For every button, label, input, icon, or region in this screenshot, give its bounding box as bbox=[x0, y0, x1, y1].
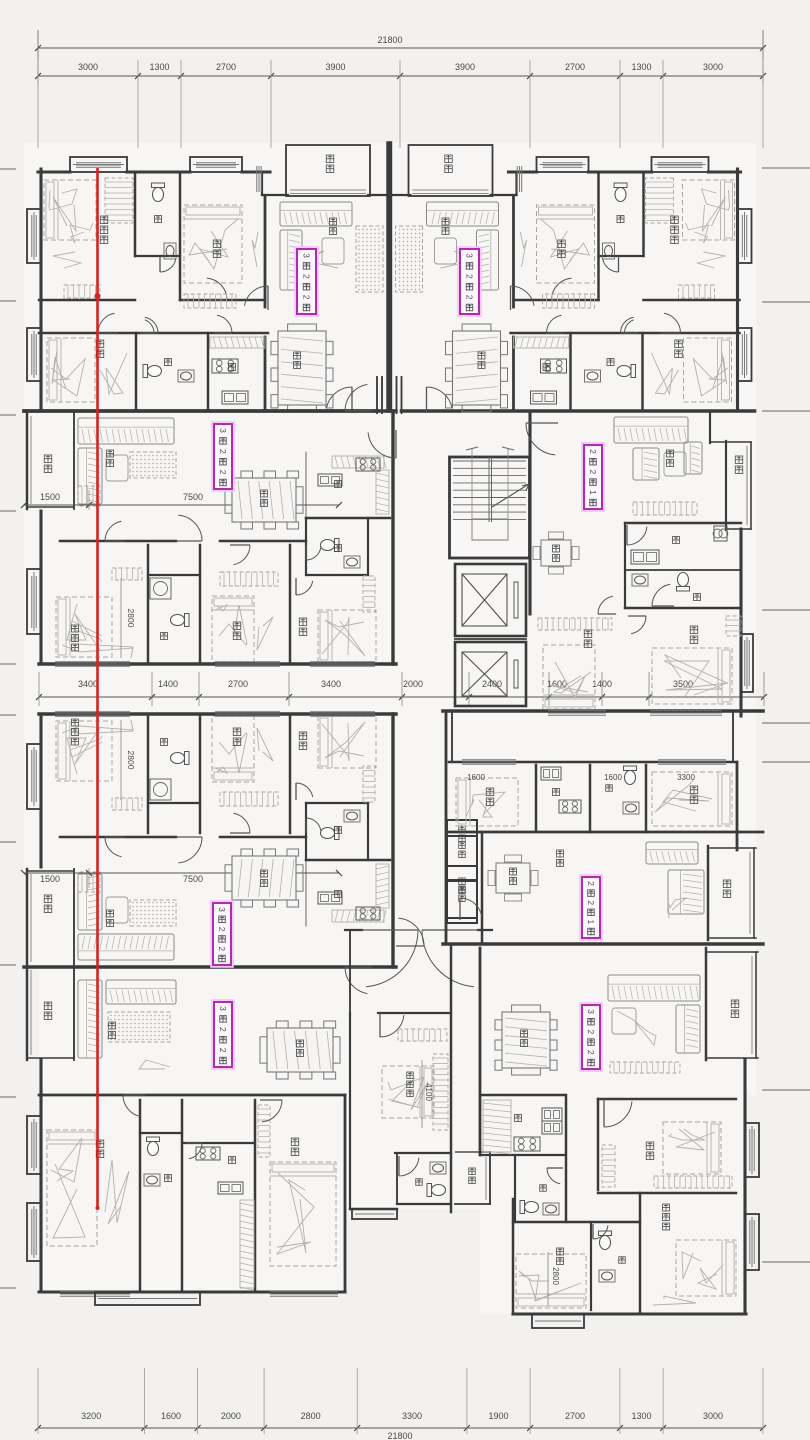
svg-text:21800: 21800 bbox=[387, 1431, 412, 1440]
svg-text:2: 2 bbox=[302, 274, 312, 279]
svg-text:3200: 3200 bbox=[81, 1411, 101, 1421]
svg-text:2700: 2700 bbox=[228, 679, 248, 689]
svg-text:2800: 2800 bbox=[126, 609, 136, 628]
svg-text:3000: 3000 bbox=[703, 62, 723, 72]
svg-text:1600: 1600 bbox=[604, 773, 622, 782]
svg-text:1300: 1300 bbox=[631, 1411, 651, 1421]
svg-text:2: 2 bbox=[218, 449, 228, 454]
svg-text:1500: 1500 bbox=[40, 874, 60, 884]
svg-text:2: 2 bbox=[218, 1048, 228, 1053]
svg-text:1: 1 bbox=[586, 920, 596, 925]
svg-text:2700: 2700 bbox=[565, 1411, 585, 1421]
svg-text:21800: 21800 bbox=[377, 35, 402, 45]
svg-text:2800: 2800 bbox=[126, 751, 136, 770]
svg-text:2: 2 bbox=[218, 470, 228, 475]
svg-text:1300: 1300 bbox=[149, 62, 169, 72]
svg-text:3: 3 bbox=[218, 428, 228, 433]
svg-text:2000: 2000 bbox=[221, 1411, 241, 1421]
svg-text:7500: 7500 bbox=[183, 492, 203, 502]
svg-text:3400: 3400 bbox=[321, 679, 341, 689]
svg-text:3900: 3900 bbox=[455, 62, 475, 72]
svg-text:2: 2 bbox=[586, 900, 596, 905]
svg-text:1400: 1400 bbox=[158, 679, 178, 689]
svg-text:3300: 3300 bbox=[402, 1411, 422, 1421]
svg-text:3400: 3400 bbox=[78, 679, 98, 689]
svg-text:2: 2 bbox=[586, 1030, 596, 1035]
svg-text:2: 2 bbox=[586, 1050, 596, 1055]
svg-text:2: 2 bbox=[588, 470, 598, 475]
svg-text:4100: 4100 bbox=[424, 1083, 433, 1101]
svg-text:3000: 3000 bbox=[703, 1411, 723, 1421]
svg-text:1900: 1900 bbox=[488, 1411, 508, 1421]
svg-text:3900: 3900 bbox=[325, 62, 345, 72]
svg-text:3: 3 bbox=[302, 253, 312, 258]
svg-text:2: 2 bbox=[588, 449, 598, 454]
svg-text:2700: 2700 bbox=[565, 62, 585, 72]
svg-text:2: 2 bbox=[217, 946, 227, 951]
svg-text:1300: 1300 bbox=[631, 62, 651, 72]
svg-text:2700: 2700 bbox=[216, 62, 236, 72]
svg-text:2: 2 bbox=[218, 1027, 228, 1032]
svg-text:2: 2 bbox=[586, 881, 596, 886]
svg-text:2800: 2800 bbox=[301, 1411, 321, 1421]
svg-text:3: 3 bbox=[218, 1006, 228, 1011]
svg-text:2: 2 bbox=[465, 295, 475, 300]
svg-text:3: 3 bbox=[217, 907, 227, 912]
svg-text:2: 2 bbox=[465, 274, 475, 279]
svg-text:2000: 2000 bbox=[403, 679, 423, 689]
svg-text:3000: 3000 bbox=[78, 62, 98, 72]
svg-text:3: 3 bbox=[586, 1009, 596, 1014]
svg-text:1500: 1500 bbox=[40, 492, 60, 502]
svg-text:1600: 1600 bbox=[161, 1411, 181, 1421]
svg-text:2800: 2800 bbox=[551, 1267, 560, 1285]
svg-text:1: 1 bbox=[588, 490, 598, 495]
svg-text:1600: 1600 bbox=[467, 773, 485, 782]
svg-text:3: 3 bbox=[465, 253, 475, 258]
svg-text:2: 2 bbox=[302, 295, 312, 300]
svg-text:3300: 3300 bbox=[677, 773, 695, 782]
svg-text:7500: 7500 bbox=[183, 874, 203, 884]
svg-text:2: 2 bbox=[217, 927, 227, 932]
